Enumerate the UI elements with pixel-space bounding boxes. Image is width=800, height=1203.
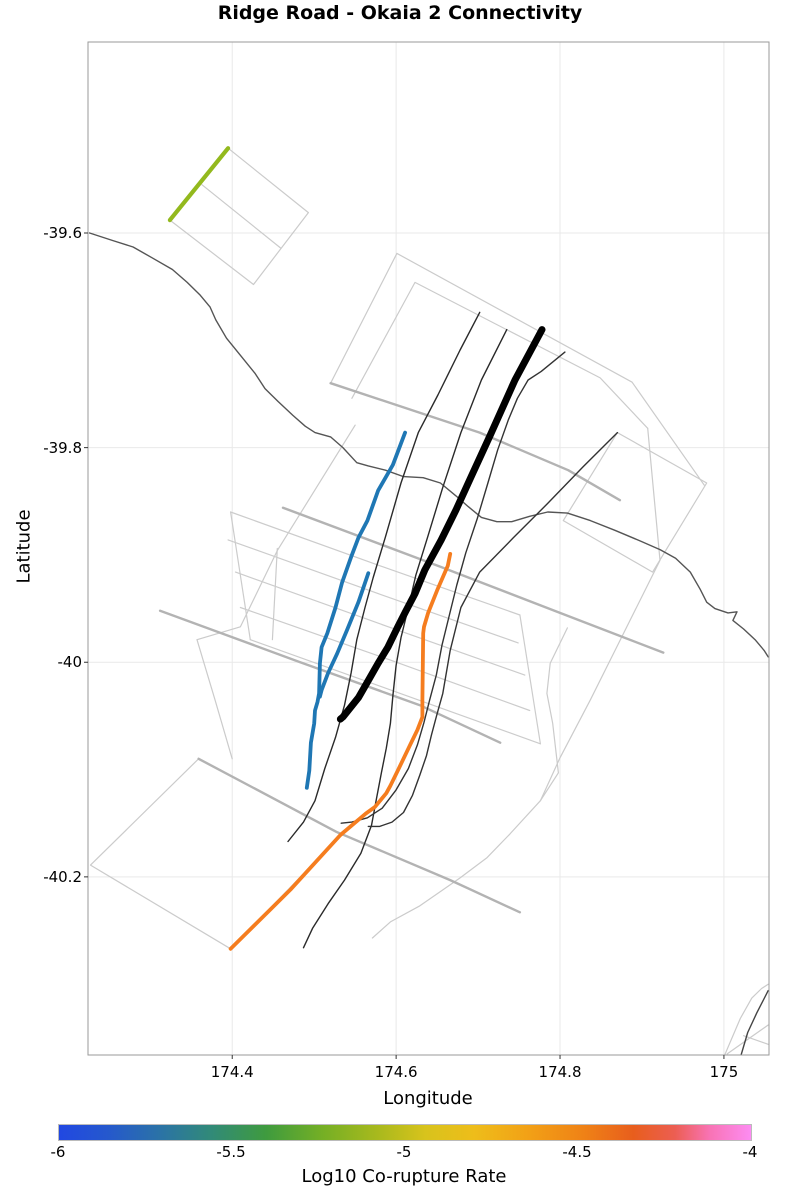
figure: Ridge Road - Okaia 2 Connectivity 174.41…	[0, 0, 800, 1203]
ladder-segment-4-trace	[240, 608, 529, 711]
boundary-west-edge-south-trace	[197, 640, 232, 759]
map-canvas	[0, 0, 800, 1203]
road-pair-1-trace	[331, 383, 620, 500]
fault-network	[90, 148, 769, 1055]
boundary-east-large-trace	[372, 428, 660, 938]
ladder-segment-2-trace	[228, 540, 518, 643]
y-tick-label: -40.2	[43, 868, 82, 886]
rupture-orange-trace	[231, 554, 451, 949]
colorbar-tick-label: -4.5	[562, 1143, 591, 1161]
boundary-rect-nw-diagonal-trace	[202, 185, 281, 248]
y-tick-label: -39.8	[43, 439, 82, 457]
colorbar-gradient	[58, 1124, 752, 1141]
road-main-trace	[90, 233, 769, 657]
corner-line-se-2-trace	[727, 1025, 768, 1054]
fault-trace-2-trace	[304, 330, 507, 948]
x-tick-label: 174.4	[211, 1063, 254, 1081]
boundary-rect-nw-trace	[170, 148, 309, 284]
colorbar-tick-label: -6	[51, 1143, 66, 1161]
fault-trace-corner-se-trace	[741, 991, 768, 1055]
y-tick-label: -39.6	[43, 224, 82, 242]
rupture-okaia2-highlight-trace	[170, 148, 228, 220]
boundary-square-east-trace	[563, 433, 706, 572]
x-tick-label: 175	[710, 1063, 739, 1081]
x-tick-label: 174.6	[375, 1063, 418, 1081]
boundary-south-diamond-trace	[91, 759, 342, 949]
ladder-end-east-trace	[520, 615, 541, 744]
colorbar-tick-label: -5	[397, 1143, 412, 1161]
y-axis-label: Latitude	[14, 487, 35, 607]
x-tick-label: 174.8	[539, 1063, 582, 1081]
colorbar-tick-label: -5.5	[216, 1143, 245, 1161]
colorbar-label: Log10 Co-rupture Rate	[58, 1166, 750, 1187]
corner-curve-se-1-trace	[725, 984, 769, 1055]
x-axis-label: Longitude	[40, 1088, 800, 1109]
road-pair-4-trace	[199, 759, 520, 913]
tick-marks	[84, 233, 724, 1059]
y-tick-label: -40	[58, 653, 83, 671]
ladder-segment-5-trace	[250, 640, 540, 744]
boundary-east-inner-arc-trace	[540, 628, 567, 801]
colorbar-tick-label: -4	[743, 1143, 758, 1161]
boundary-west-edge-trace	[197, 425, 355, 640]
boundary-vertical-short-trace	[272, 549, 277, 640]
fault-trace-4-trace	[368, 433, 617, 827]
